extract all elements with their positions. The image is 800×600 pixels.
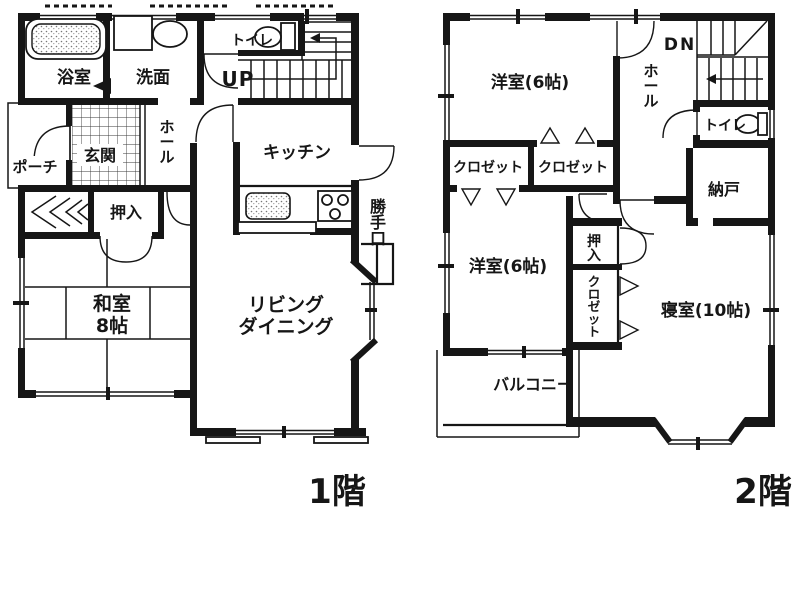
kitchen-counter-icon (238, 186, 352, 233)
folding-door-icon (462, 189, 480, 205)
closet-b-label: クロゼット (538, 159, 608, 176)
window (215, 13, 270, 21)
washing-machine-icon (114, 16, 152, 50)
wood-floor-icon (32, 196, 88, 228)
entrance-step (140, 105, 145, 188)
floor2-plan: 洋室(6帖) DN ホール トイレ クロゼット クロゼット 納戸 洋室(6帖) … (437, 9, 792, 512)
hall1f-label: ホール (159, 118, 174, 166)
floor2-doors (457, 21, 697, 342)
window (590, 9, 660, 24)
floorplan-svg: 浴室 洗面 トイレ UP ホール キッチン 玄関 ポーチ 押入 勝手口 和室 8… (0, 0, 800, 600)
backdoor-step (361, 244, 393, 284)
floorplan-image: 浴室 洗面 トイレ UP ホール キッチン 玄関 ポーチ 押入 勝手口 和室 8… (0, 0, 800, 600)
folding-door-icon (497, 189, 515, 205)
folding-door-icon (541, 128, 559, 143)
living-label-1: リビング (248, 293, 324, 316)
western2-label: 洋室(6帖) (469, 256, 547, 277)
door-arc (620, 200, 654, 234)
living-label-2: ダイニング (238, 315, 333, 338)
stairs-down-label: DN (664, 35, 696, 55)
closet-c-label: クロゼット (588, 274, 601, 339)
folding-door-icon (620, 277, 638, 295)
stairs-up-label: UP (222, 67, 255, 91)
window (30, 387, 180, 400)
oshiire2f-label: 押入 (587, 233, 601, 264)
floor1-title: 1階 (308, 472, 366, 512)
stairs-down-icon (697, 13, 768, 100)
door-arc (579, 194, 607, 222)
window (438, 233, 454, 313)
hall2f-label: ホール (643, 62, 658, 110)
door-arc (167, 192, 190, 225)
closet1f-label: 押入 (110, 203, 142, 222)
porch-label: ポーチ (12, 158, 57, 176)
window (763, 235, 779, 345)
closet-a-label: クロゼット (453, 159, 523, 176)
folding-door-icon (620, 321, 638, 339)
entrance-label: 玄関 (84, 146, 116, 165)
bath-slide-door-icon (93, 78, 111, 94)
backdoor-label: 勝手口 (370, 197, 387, 248)
backdoor-swing (359, 146, 394, 180)
window (438, 45, 454, 140)
door-arc (617, 21, 654, 58)
door-arc (663, 110, 697, 138)
storage-label: 納戸 (708, 180, 740, 199)
window (13, 258, 29, 348)
door-arc (196, 105, 233, 142)
washbasin-icon (153, 21, 187, 47)
window (488, 346, 562, 358)
tatami-label-1: 和室 (93, 292, 131, 315)
bathroom-label: 浴室 (57, 67, 91, 88)
bay-window (352, 260, 377, 362)
kitchen-label: キッチン (263, 143, 331, 163)
bay-window (653, 419, 747, 450)
floor1-plan: 浴室 洗面 トイレ UP ホール キッチン 玄関 ポーチ 押入 勝手口 和室 8… (8, 6, 394, 512)
window (470, 9, 545, 24)
balcony-label: バルコニー (493, 375, 573, 394)
bathtub-icon (26, 19, 106, 59)
window (768, 110, 775, 138)
folding-door-icon (576, 128, 594, 143)
bedroom-label: 寝室(10帖) (661, 300, 751, 321)
double-door-arc (100, 236, 152, 262)
washroom-label: 洗面 (136, 67, 170, 88)
floor2-title: 2階 (734, 472, 792, 512)
toilet2f-label: トイレ (704, 118, 746, 134)
toilet1f-label: トイレ (231, 33, 273, 49)
tatami-label-2: 8帖 (96, 314, 128, 337)
western1-label: 洋室(6帖) (491, 72, 569, 93)
